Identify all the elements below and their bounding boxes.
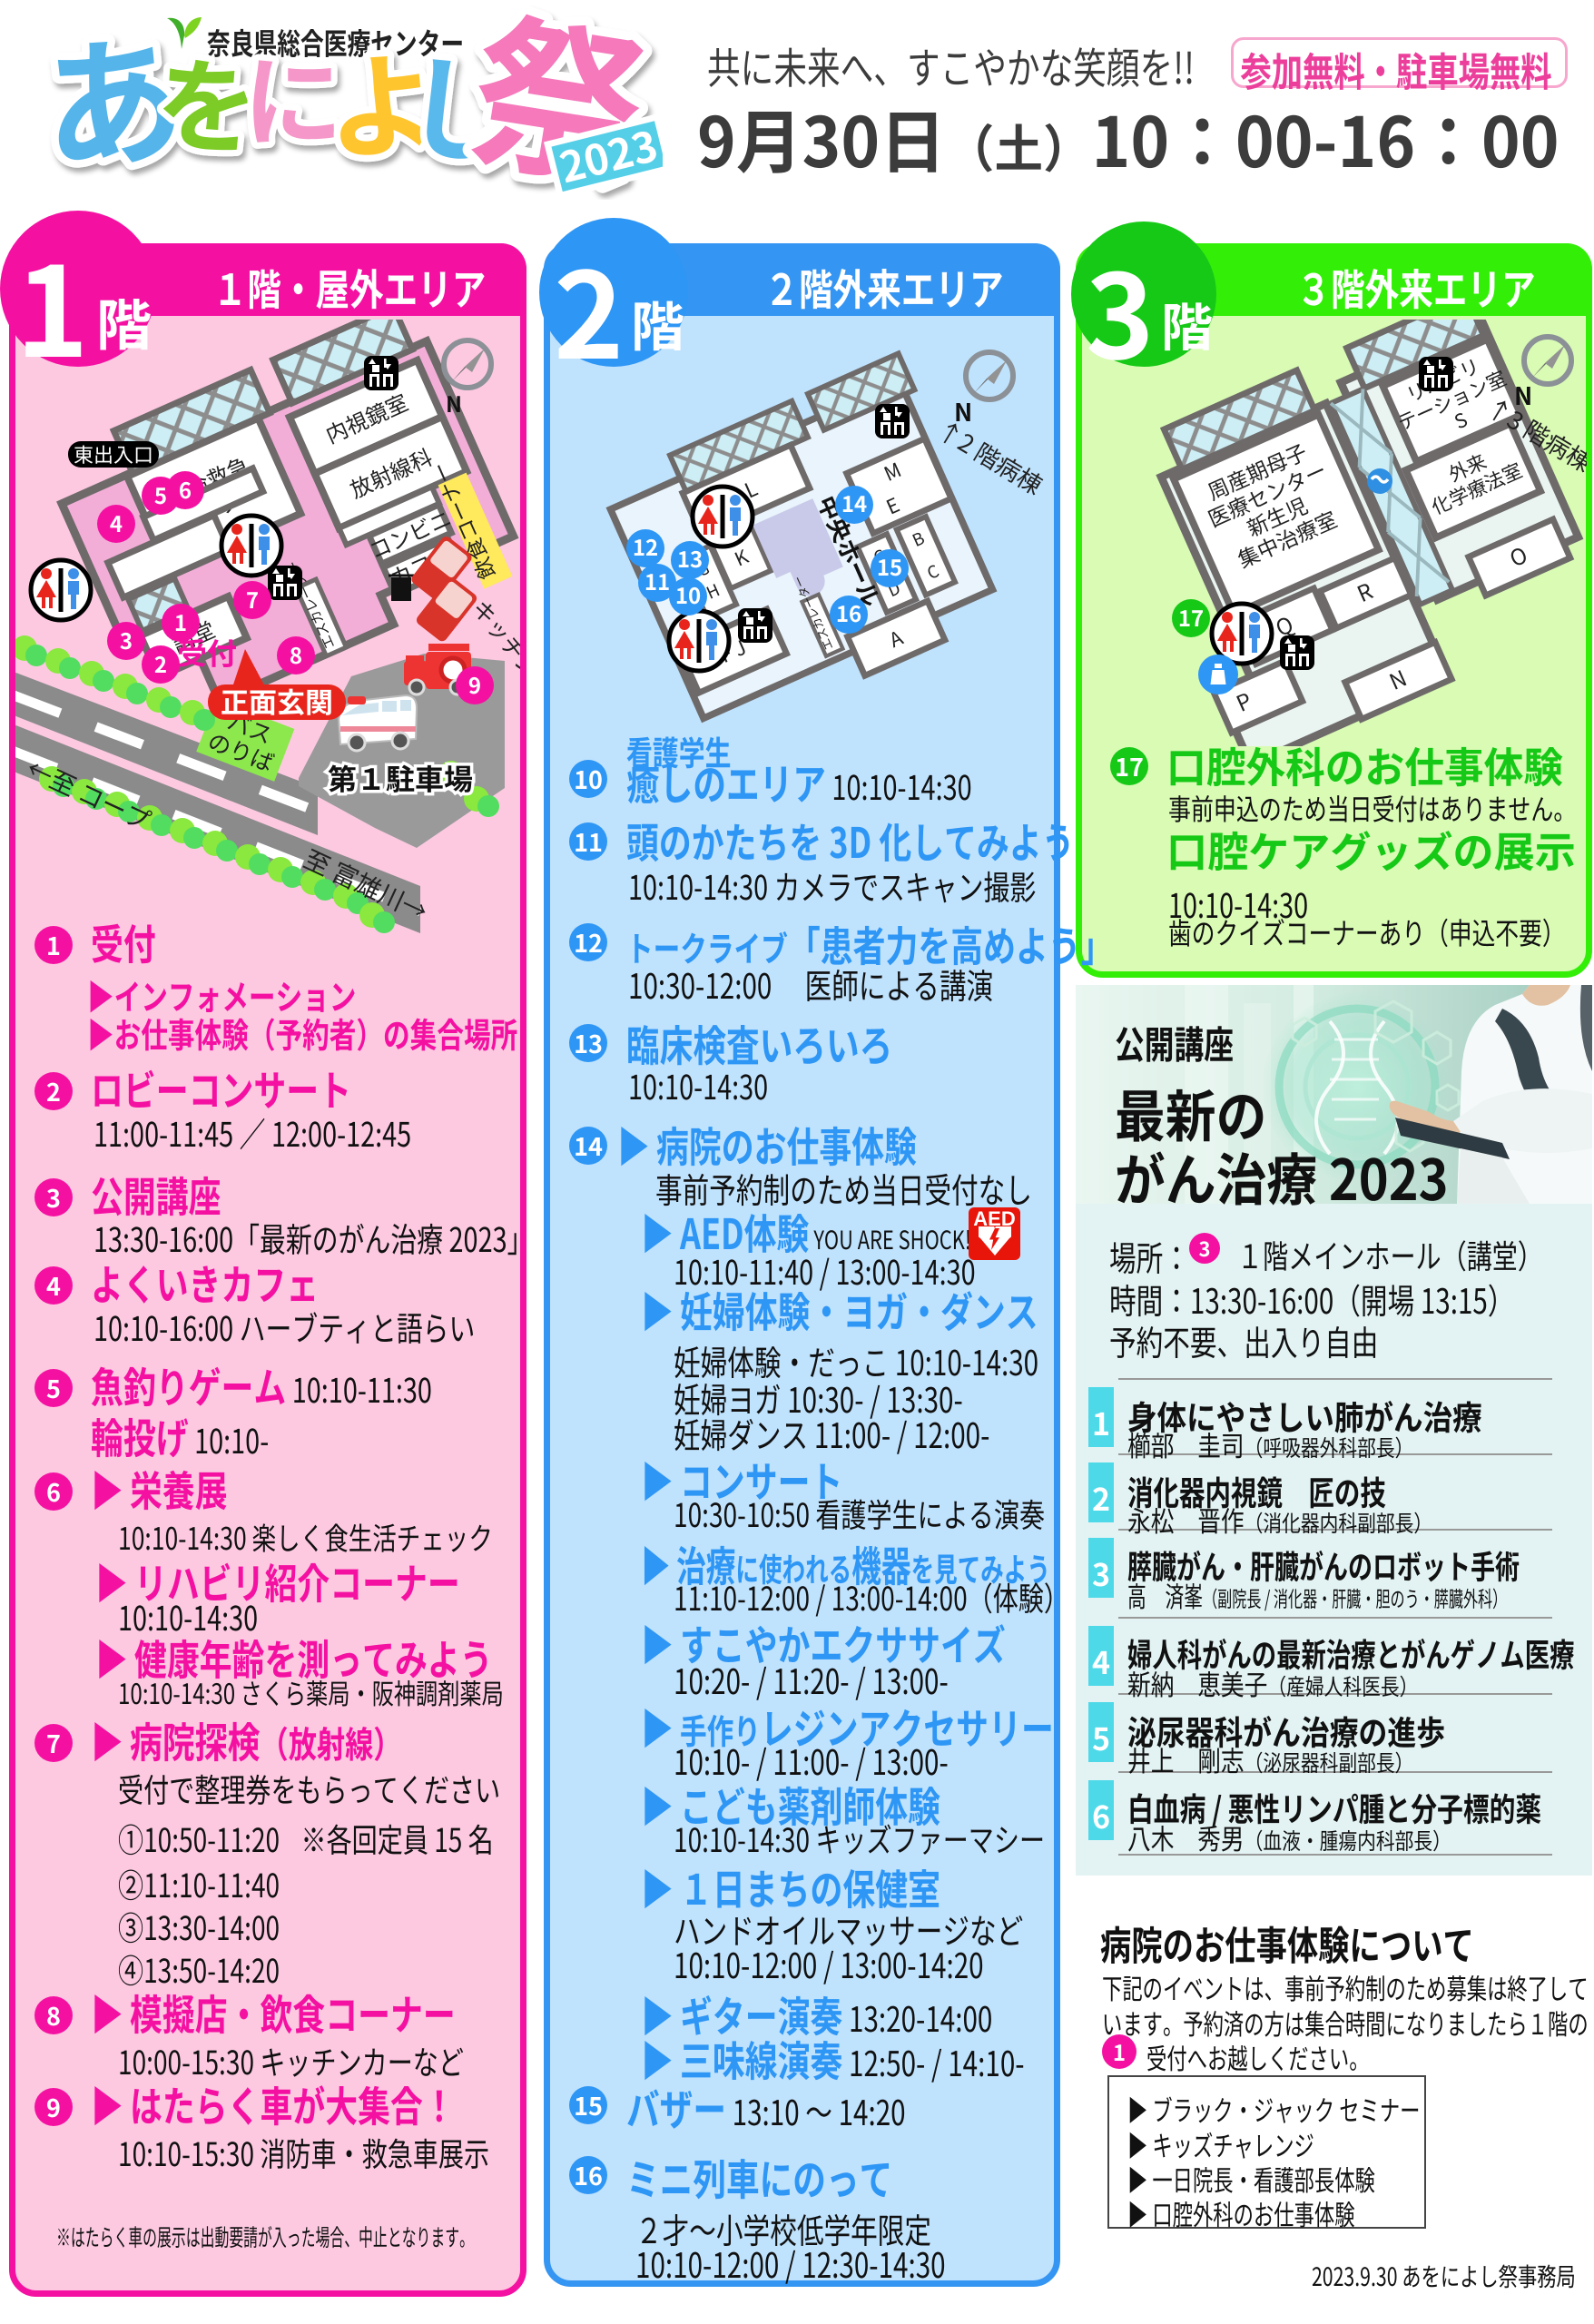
svg-text:1: 1 [174,606,187,637]
svg-text:17: 17 [1178,601,1204,633]
svg-text:正面玄関: 正面玄関 [221,680,333,721]
svg-text:東出入口: 東出入口 [74,439,153,468]
svg-text:9: 9 [468,668,481,700]
svg-text:7: 7 [246,583,259,615]
svg-text:5: 5 [154,478,167,510]
svg-text:13: 13 [677,542,703,574]
svg-text:第１駐車場: 第１駐車場 [328,757,473,799]
svg-text:4: 4 [110,507,123,538]
svg-text:8: 8 [290,638,302,670]
svg-text:12: 12 [633,530,658,562]
svg-text:15: 15 [877,550,902,582]
svg-text:6: 6 [179,473,192,505]
svg-text:2: 2 [154,647,167,679]
svg-text:16: 16 [836,596,861,628]
svg-text:10: 10 [675,578,701,610]
svg-text:3: 3 [120,624,133,655]
svg-text:11: 11 [644,565,670,596]
svg-text:N: N [446,387,462,419]
svg-text:14: 14 [841,487,867,518]
